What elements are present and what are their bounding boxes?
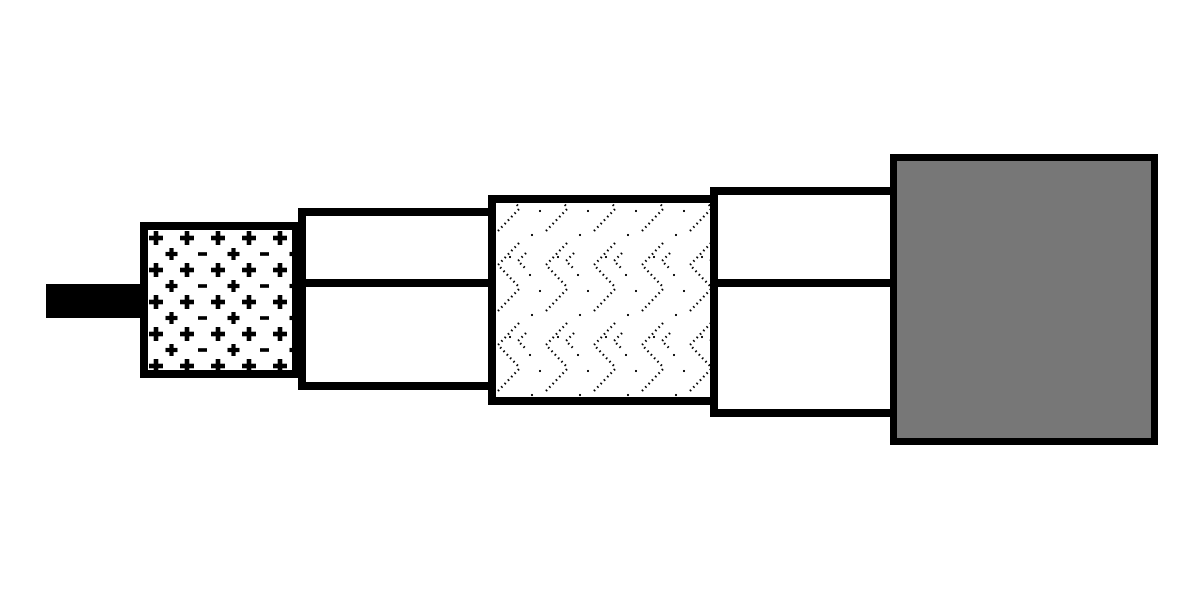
outer-shield-box bbox=[714, 191, 896, 413]
outer-shield-layer bbox=[714, 191, 896, 413]
inner-shield-layer bbox=[302, 212, 494, 386]
braided-shield bbox=[492, 199, 714, 401]
outer-shield-midline bbox=[718, 279, 892, 287]
cable-diagram bbox=[0, 0, 1200, 600]
center-conductor-wire bbox=[46, 284, 146, 318]
inner-shield-box bbox=[302, 212, 494, 386]
center-conductor bbox=[46, 284, 146, 318]
inner-shield-midline bbox=[306, 279, 490, 287]
outer-jacket-box bbox=[894, 158, 1155, 442]
dielectric-insulator bbox=[144, 226, 296, 374]
outer-jacket bbox=[894, 158, 1155, 442]
braid-weave-pattern bbox=[496, 203, 710, 397]
plus-minus-pattern bbox=[148, 230, 292, 370]
cable-diagram-canvas bbox=[0, 0, 1200, 600]
